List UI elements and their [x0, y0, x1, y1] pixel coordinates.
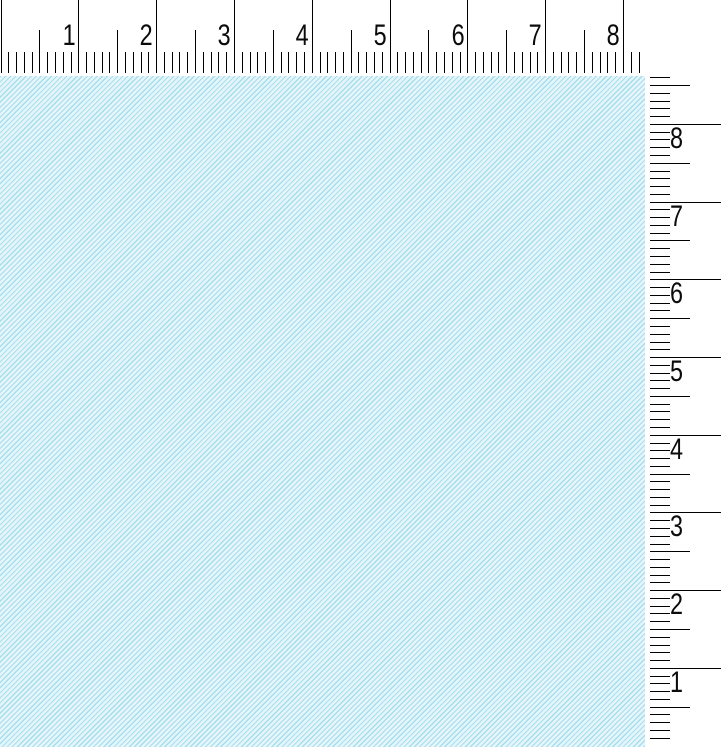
ruler-number: 7: [670, 202, 683, 232]
minor-tick: [8, 52, 9, 73]
minor-tick: [650, 419, 670, 420]
ruler-number: 4: [296, 21, 309, 51]
minor-tick: [650, 676, 670, 677]
major-tick: [623, 0, 624, 73]
minor-tick: [650, 714, 670, 715]
minor-tick: [650, 272, 670, 273]
minor-tick: [607, 52, 608, 73]
ruler-number: 7: [529, 21, 542, 51]
minor-tick: [650, 264, 670, 265]
minor-tick: [109, 52, 110, 73]
minor-tick: [327, 52, 328, 73]
minor-tick: [650, 132, 670, 133]
minor-tick: [650, 575, 670, 576]
minor-tick: [250, 52, 251, 73]
minor-tick: [650, 404, 670, 405]
minor-tick: [296, 52, 297, 73]
minor-tick: [650, 186, 670, 187]
minor-tick: [102, 52, 103, 73]
app-canvas-view: 12345678 87654321: [0, 0, 721, 747]
ruler-number: 3: [670, 512, 683, 542]
minor-tick: [475, 52, 476, 73]
minor-tick: [530, 52, 531, 73]
minor-tick: [650, 598, 670, 599]
minor-tick: [561, 52, 562, 73]
ruler-number: 6: [451, 21, 464, 51]
major-tick: [650, 668, 721, 669]
half-tick: [195, 30, 196, 73]
minor-tick: [650, 256, 670, 257]
minor-tick: [615, 52, 616, 73]
half-tick: [650, 551, 690, 552]
minor-tick: [650, 310, 670, 311]
minor-tick: [164, 52, 165, 73]
minor-tick: [179, 52, 180, 73]
minor-tick: [650, 536, 670, 537]
minor-tick: [483, 52, 484, 73]
minor-tick: [148, 52, 149, 73]
minor-tick: [650, 722, 670, 723]
minor-tick: [514, 52, 515, 73]
minor-tick: [650, 303, 670, 304]
minor-tick: [650, 295, 670, 296]
ruler-number: 8: [670, 124, 683, 154]
minor-tick: [452, 52, 453, 73]
minor-tick: [125, 52, 126, 73]
minor-tick: [650, 559, 670, 560]
major-tick: [312, 0, 313, 73]
minor-tick: [650, 342, 670, 343]
minor-tick: [141, 52, 142, 73]
minor-tick: [650, 171, 670, 172]
major-tick: [650, 357, 721, 358]
ruler-number: 1: [670, 668, 683, 698]
minor-tick: [650, 108, 670, 109]
major-tick: [467, 0, 468, 73]
minor-tick: [650, 660, 670, 661]
minor-tick: [304, 52, 305, 73]
minor-tick: [650, 147, 670, 148]
major-tick: [234, 0, 235, 73]
minor-tick: [650, 194, 670, 195]
minor-tick: [650, 481, 670, 482]
minor-tick: [537, 52, 538, 73]
minor-tick: [650, 683, 670, 684]
minor-tick: [382, 52, 383, 73]
minor-tick: [650, 691, 670, 692]
minor-tick: [444, 52, 445, 73]
vertical-ruler[interactable]: 87654321: [646, 0, 721, 747]
minor-tick: [358, 52, 359, 73]
minor-tick: [218, 52, 219, 73]
minor-tick: [47, 52, 48, 73]
minor-tick: [491, 52, 492, 73]
minor-tick: [320, 52, 321, 73]
minor-tick: [650, 466, 670, 467]
half-tick: [650, 318, 690, 319]
minor-tick: [650, 334, 670, 335]
major-tick: [650, 435, 721, 436]
minor-tick: [86, 52, 87, 73]
minor-tick: [335, 52, 336, 73]
minor-tick: [553, 52, 554, 73]
minor-tick: [460, 52, 461, 73]
minor-tick: [650, 637, 670, 638]
minor-tick: [650, 209, 670, 210]
horizontal-ruler[interactable]: 12345678: [0, 0, 721, 76]
minor-tick: [650, 738, 670, 739]
minor-tick: [650, 411, 670, 412]
minor-tick: [650, 699, 670, 700]
minor-tick: [650, 730, 670, 731]
minor-tick: [16, 52, 17, 73]
minor-tick: [650, 217, 670, 218]
minor-tick: [650, 645, 670, 646]
major-tick: [650, 124, 721, 125]
ruler-number: 3: [218, 21, 231, 51]
minor-tick: [650, 505, 670, 506]
minor-tick: [413, 52, 414, 73]
ruler-number: 2: [670, 590, 683, 620]
half-tick: [650, 163, 690, 164]
major-tick: [650, 590, 721, 591]
ruler-number: 5: [670, 357, 683, 387]
minor-tick: [32, 52, 33, 73]
half-tick: [39, 30, 40, 73]
minor-tick: [397, 52, 398, 73]
major-tick: [545, 0, 546, 73]
minor-tick: [650, 427, 670, 428]
minor-tick: [281, 52, 282, 73]
minor-tick: [650, 248, 670, 249]
minor-tick: [650, 489, 670, 490]
minor-tick: [63, 52, 64, 73]
minor-tick: [187, 52, 188, 73]
minor-tick: [650, 582, 670, 583]
minor-tick: [576, 52, 577, 73]
minor-tick: [94, 52, 95, 73]
half-tick: [273, 30, 274, 73]
half-tick: [650, 474, 690, 475]
ruler-number: 5: [373, 21, 386, 51]
minor-tick: [650, 155, 670, 156]
minor-tick: [631, 52, 632, 73]
minor-tick: [650, 450, 670, 451]
minor-tick: [650, 326, 670, 327]
minor-tick: [343, 52, 344, 73]
minor-tick: [650, 458, 670, 459]
minor-tick: [650, 93, 670, 94]
half-tick: [351, 30, 352, 73]
minor-tick: [24, 52, 25, 73]
minor-tick: [257, 52, 258, 73]
minor-tick: [650, 380, 670, 381]
minor-tick: [650, 613, 670, 614]
ruler-number: 8: [607, 21, 620, 51]
half-tick: [650, 240, 690, 241]
minor-tick: [226, 52, 227, 73]
minor-tick: [650, 225, 670, 226]
half-tick: [428, 30, 429, 73]
minor-tick: [288, 52, 289, 73]
major-tick: [650, 512, 721, 513]
minor-tick: [650, 139, 670, 140]
ruler-number: 6: [670, 279, 683, 309]
minor-tick: [650, 443, 670, 444]
minor-tick: [650, 606, 670, 607]
minor-tick: [568, 52, 569, 73]
minor-tick: [650, 544, 670, 545]
major-tick: [650, 202, 721, 203]
minor-tick: [650, 178, 670, 179]
minor-tick: [211, 52, 212, 73]
ruler-number: 4: [670, 435, 683, 465]
minor-tick: [650, 520, 670, 521]
minor-tick: [366, 52, 367, 73]
major-tick: [390, 0, 391, 73]
minor-tick: [265, 52, 266, 73]
minor-tick: [436, 52, 437, 73]
minor-tick: [650, 388, 670, 389]
major-tick: [78, 0, 79, 73]
minor-tick: [374, 52, 375, 73]
minor-tick: [650, 101, 670, 102]
minor-tick: [650, 365, 670, 366]
minor-tick: [405, 52, 406, 73]
minor-tick: [242, 52, 243, 73]
minor-tick: [650, 233, 670, 234]
minor-tick: [55, 52, 56, 73]
major-tick: [1, 0, 2, 73]
major-tick: [156, 0, 157, 73]
ruler-number: 1: [62, 21, 75, 51]
half-tick: [650, 629, 690, 630]
half-tick: [117, 30, 118, 73]
minor-tick: [650, 621, 670, 622]
minor-tick: [639, 52, 640, 73]
minor-tick: [650, 497, 670, 498]
minor-tick: [650, 567, 670, 568]
canvas[interactable]: [0, 76, 645, 747]
minor-tick: [522, 52, 523, 73]
minor-tick: [600, 52, 601, 73]
half-tick: [650, 85, 690, 86]
minor-tick: [172, 52, 173, 73]
minor-tick: [650, 652, 670, 653]
minor-tick: [592, 52, 593, 73]
minor-tick: [421, 52, 422, 73]
minor-tick: [650, 116, 670, 117]
major-tick: [650, 279, 721, 280]
half-tick: [650, 396, 690, 397]
half-tick: [584, 30, 585, 73]
minor-tick: [498, 52, 499, 73]
minor-tick: [650, 349, 670, 350]
ruler-number: 2: [140, 21, 153, 51]
half-tick: [506, 30, 507, 73]
half-tick: [650, 707, 690, 708]
minor-tick: [71, 52, 72, 73]
minor-tick: [203, 52, 204, 73]
minor-tick: [650, 373, 670, 374]
minor-tick: [650, 528, 670, 529]
minor-tick: [133, 52, 134, 73]
minor-tick: [650, 287, 670, 288]
minor-tick: [650, 77, 670, 78]
